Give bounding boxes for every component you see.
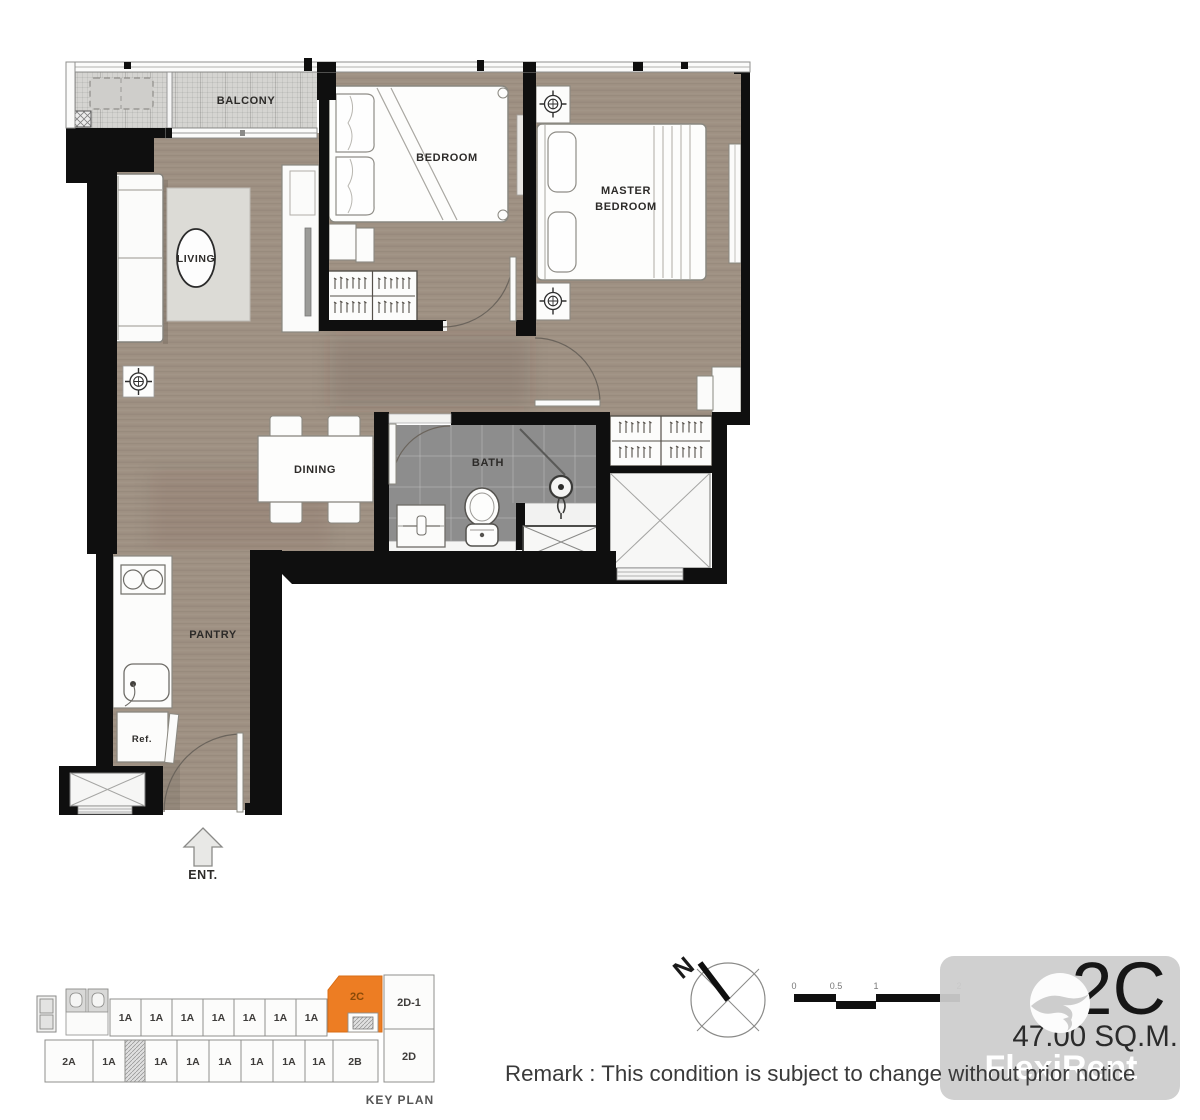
svg-text:1A: 1A — [181, 1012, 195, 1024]
svg-text:2D: 2D — [402, 1051, 416, 1063]
svg-text:0: 0 — [791, 981, 796, 991]
svg-text:2D-1: 2D-1 — [397, 997, 421, 1009]
svg-text:MASTER: MASTER — [601, 185, 651, 197]
svg-text:2A: 2A — [62, 1056, 76, 1068]
svg-text:1A: 1A — [243, 1012, 257, 1024]
svg-text:1A: 1A — [119, 1012, 133, 1024]
svg-text:BEDROOM: BEDROOM — [595, 201, 657, 213]
svg-text:BEDROOM: BEDROOM — [416, 152, 478, 164]
svg-text:BALCONY: BALCONY — [217, 95, 276, 107]
svg-text:Remark : This condition is sub: Remark : This condition is subject to ch… — [505, 1061, 1135, 1086]
svg-text:PANTRY: PANTRY — [189, 629, 237, 641]
svg-text:1A: 1A — [150, 1012, 164, 1024]
svg-text:Ref.: Ref. — [132, 734, 152, 745]
svg-text:BATH: BATH — [472, 457, 504, 469]
svg-text:ENT.: ENT. — [188, 868, 218, 882]
svg-text:1A: 1A — [274, 1012, 288, 1024]
svg-text:2C: 2C — [350, 991, 364, 1003]
svg-text:1A: 1A — [250, 1056, 264, 1068]
svg-text:2B: 2B — [348, 1056, 362, 1068]
svg-text:LIVING: LIVING — [177, 253, 216, 265]
svg-text:1A: 1A — [305, 1012, 319, 1024]
svg-text:1A: 1A — [154, 1056, 168, 1068]
svg-text:KEY PLAN: KEY PLAN — [366, 1093, 434, 1107]
svg-text:1A: 1A — [212, 1012, 226, 1024]
svg-text:1A: 1A — [102, 1056, 116, 1068]
svg-text:1A: 1A — [312, 1056, 326, 1068]
svg-text:1A: 1A — [282, 1056, 296, 1068]
svg-text:0.5: 0.5 — [830, 981, 843, 991]
svg-text:DINING: DINING — [294, 464, 336, 476]
svg-text:1A: 1A — [186, 1056, 200, 1068]
svg-text:1: 1 — [873, 981, 878, 991]
svg-text:1A: 1A — [218, 1056, 232, 1068]
